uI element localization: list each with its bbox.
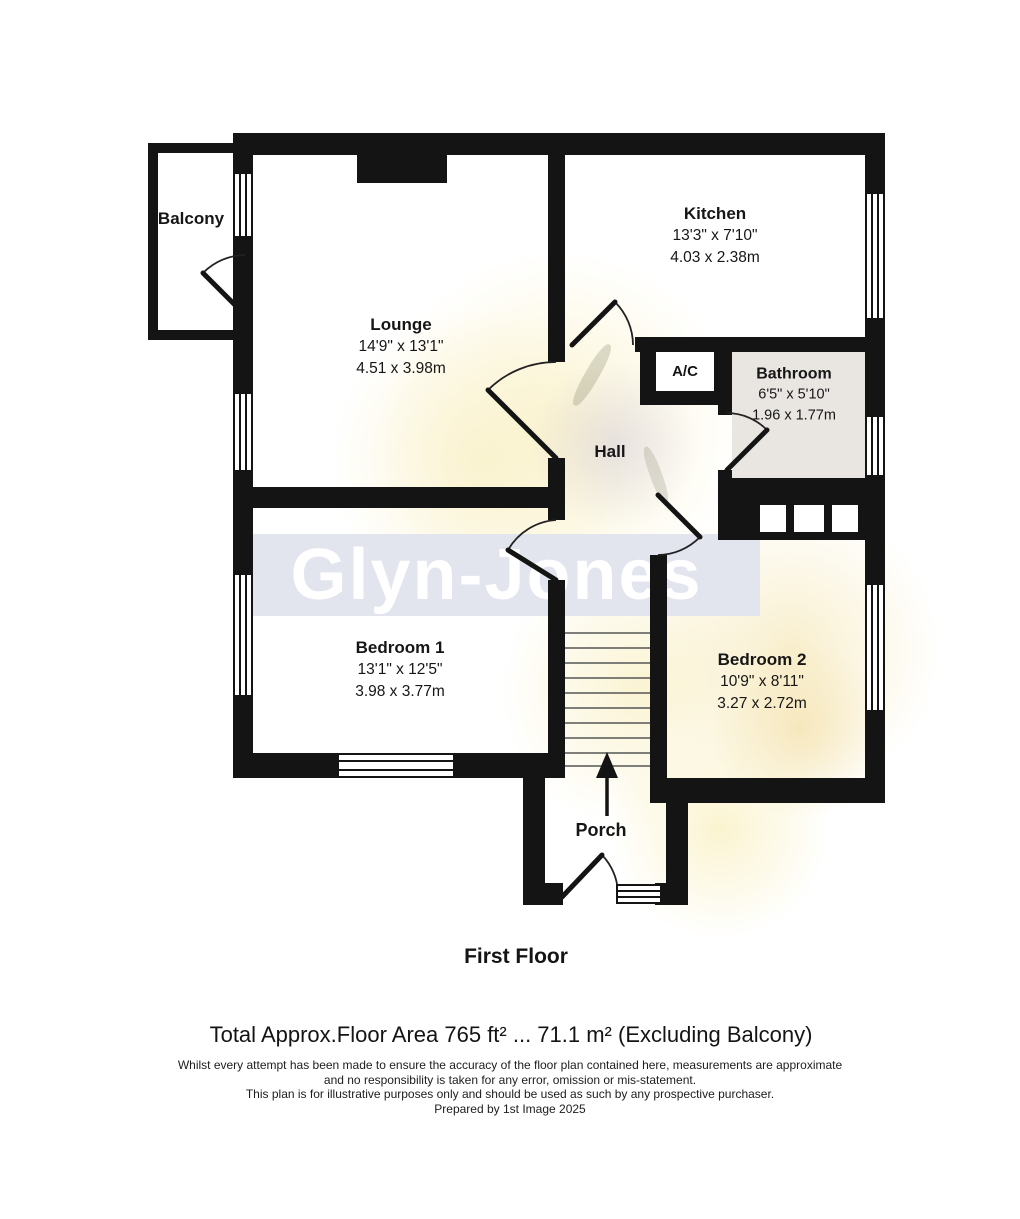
room-label-bedroom1: Bedroom 1 13'1" x 12'5" 3.98 x 3.77m <box>355 637 445 703</box>
room-name: Hall <box>594 441 625 463</box>
stairs <box>565 633 650 766</box>
room-dims-ft: 10'9" x 8'11" <box>717 671 807 693</box>
window <box>233 172 253 238</box>
room-label-balcony: Balcony <box>158 208 224 230</box>
room-name: Porch <box>575 819 626 841</box>
room-label-bedroom2: Bedroom 2 10'9" x 8'11" 3.27 x 2.72m <box>717 649 807 715</box>
window <box>337 753 455 778</box>
room-label-bathroom: Bathroom 6'5" x 5'10" 1.96 x 1.77m <box>752 364 836 427</box>
window <box>616 884 662 904</box>
room-label-lounge: Lounge 14'9" x 13'1" 4.51 x 3.98m <box>356 314 446 380</box>
floor-title: First Floor <box>464 945 568 969</box>
disclaimer-line: and no responsibility is taken for any e… <box>80 1073 940 1088</box>
room-name: Balcony <box>158 208 224 230</box>
disclaimer-line: Whilst every attempt has been made to en… <box>80 1058 940 1073</box>
room-dims-m: 1.96 x 1.77m <box>752 406 836 427</box>
floorplan-canvas: Glyn-Jones A/C <box>0 0 1020 1219</box>
room-label-hall: Hall <box>594 441 625 463</box>
room-label-kitchen: Kitchen 13'3" x 7'10" 4.03 x 2.38m <box>670 203 760 269</box>
room-label-porch: Porch <box>575 819 626 841</box>
room-dims-ft: 13'1" x 12'5" <box>355 659 445 681</box>
disclaimer-line: This plan is for illustrative purposes o… <box>80 1087 940 1102</box>
room-name: Bedroom 1 <box>355 637 445 659</box>
room-name: Bathroom <box>752 364 836 385</box>
room-dims-ft: 6'5" x 5'10" <box>752 385 836 406</box>
room-name: Kitchen <box>670 203 760 225</box>
window <box>865 415 885 477</box>
room-dims-m: 4.51 x 3.98m <box>356 358 446 380</box>
room-name: Bedroom 2 <box>717 649 807 671</box>
room-dims-ft: 13'3" x 7'10" <box>670 225 760 247</box>
window <box>233 392 253 472</box>
room-dims-m: 3.27 x 2.72m <box>717 693 807 715</box>
room-name: Lounge <box>356 314 446 336</box>
window <box>233 573 253 697</box>
door-leaves <box>203 273 767 897</box>
window <box>865 583 885 712</box>
disclaimer: Whilst every attempt has been made to en… <box>80 1058 940 1116</box>
window <box>865 192 885 320</box>
area-summary: Total Approx.Floor Area 765 ft² ... 71.1… <box>210 1022 813 1048</box>
room-dims-m: 4.03 x 2.38m <box>670 247 760 269</box>
stairs-up-arrow <box>596 752 618 816</box>
door-arcs <box>203 255 767 895</box>
disclaimer-line: Prepared by 1st Image 2025 <box>80 1102 940 1117</box>
room-dims-ft: 14'9" x 13'1" <box>356 336 446 358</box>
room-dims-m: 3.98 x 3.77m <box>355 681 445 703</box>
